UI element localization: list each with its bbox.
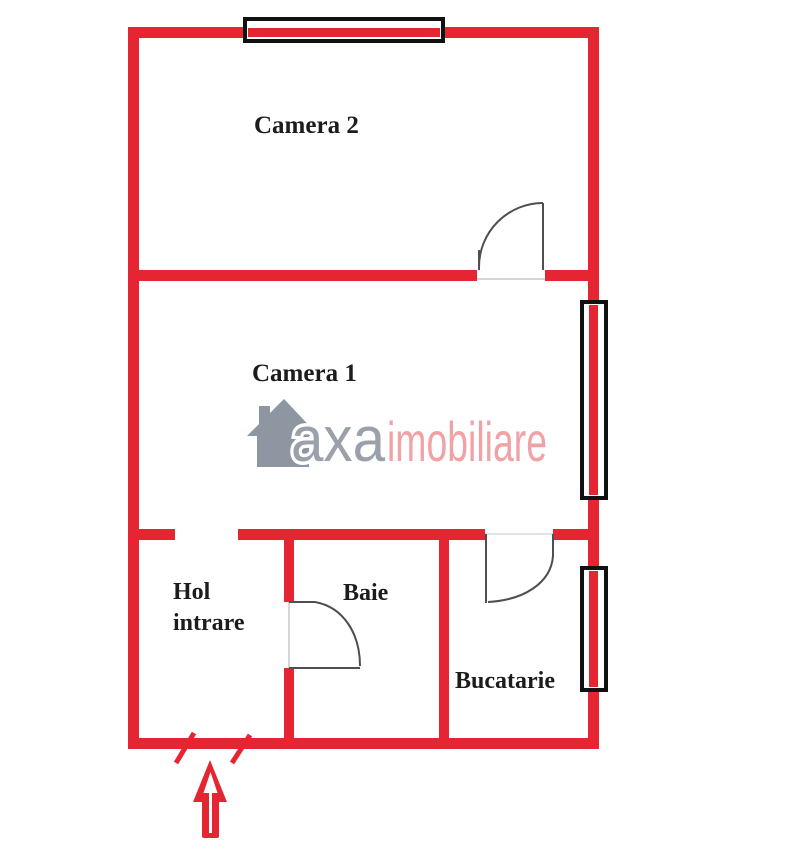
wall-hol-baie-bottom xyxy=(284,668,294,738)
wall-camera2-camera1-right xyxy=(545,270,588,281)
room-label-hol-line2: intrare xyxy=(173,608,245,639)
camera1-right-window xyxy=(582,302,606,498)
wall-hol-baie-top xyxy=(284,529,294,602)
wall-camera1-hol-left xyxy=(139,529,175,540)
bucatarie-right-window xyxy=(582,568,606,690)
floorplan-drawing: axa imobiliare xyxy=(0,0,800,862)
floorplan-canvas: axa imobiliare xyxy=(0,0,800,862)
room-label-camera1: Camera 1 xyxy=(252,358,357,389)
wall-left xyxy=(128,27,139,749)
baie-door xyxy=(289,602,360,668)
bucatarie-door xyxy=(485,534,553,603)
room-label-bucatarie: Bucatarie xyxy=(455,666,555,696)
wall-baie-bucatarie xyxy=(439,529,449,738)
wall-camera1-right xyxy=(553,529,588,540)
entrance-arrow-up-icon xyxy=(193,760,227,838)
watermark-logo: axa imobiliare xyxy=(247,399,547,475)
room-label-hol: Hol intrare xyxy=(173,577,245,639)
walls xyxy=(128,27,599,749)
camera2-door xyxy=(477,203,545,279)
room-label-hol-line1: Hol xyxy=(173,577,245,608)
top-wall-window xyxy=(245,19,443,41)
watermark-brand-primary: axa xyxy=(291,403,385,475)
wall-camera2-camera1-left xyxy=(139,270,477,281)
room-label-camera2: Camera 2 xyxy=(254,110,359,141)
room-label-baie: Baie xyxy=(343,578,388,608)
watermark-brand-secondary: imobiliare xyxy=(387,410,547,473)
wall-bottom xyxy=(128,738,599,749)
